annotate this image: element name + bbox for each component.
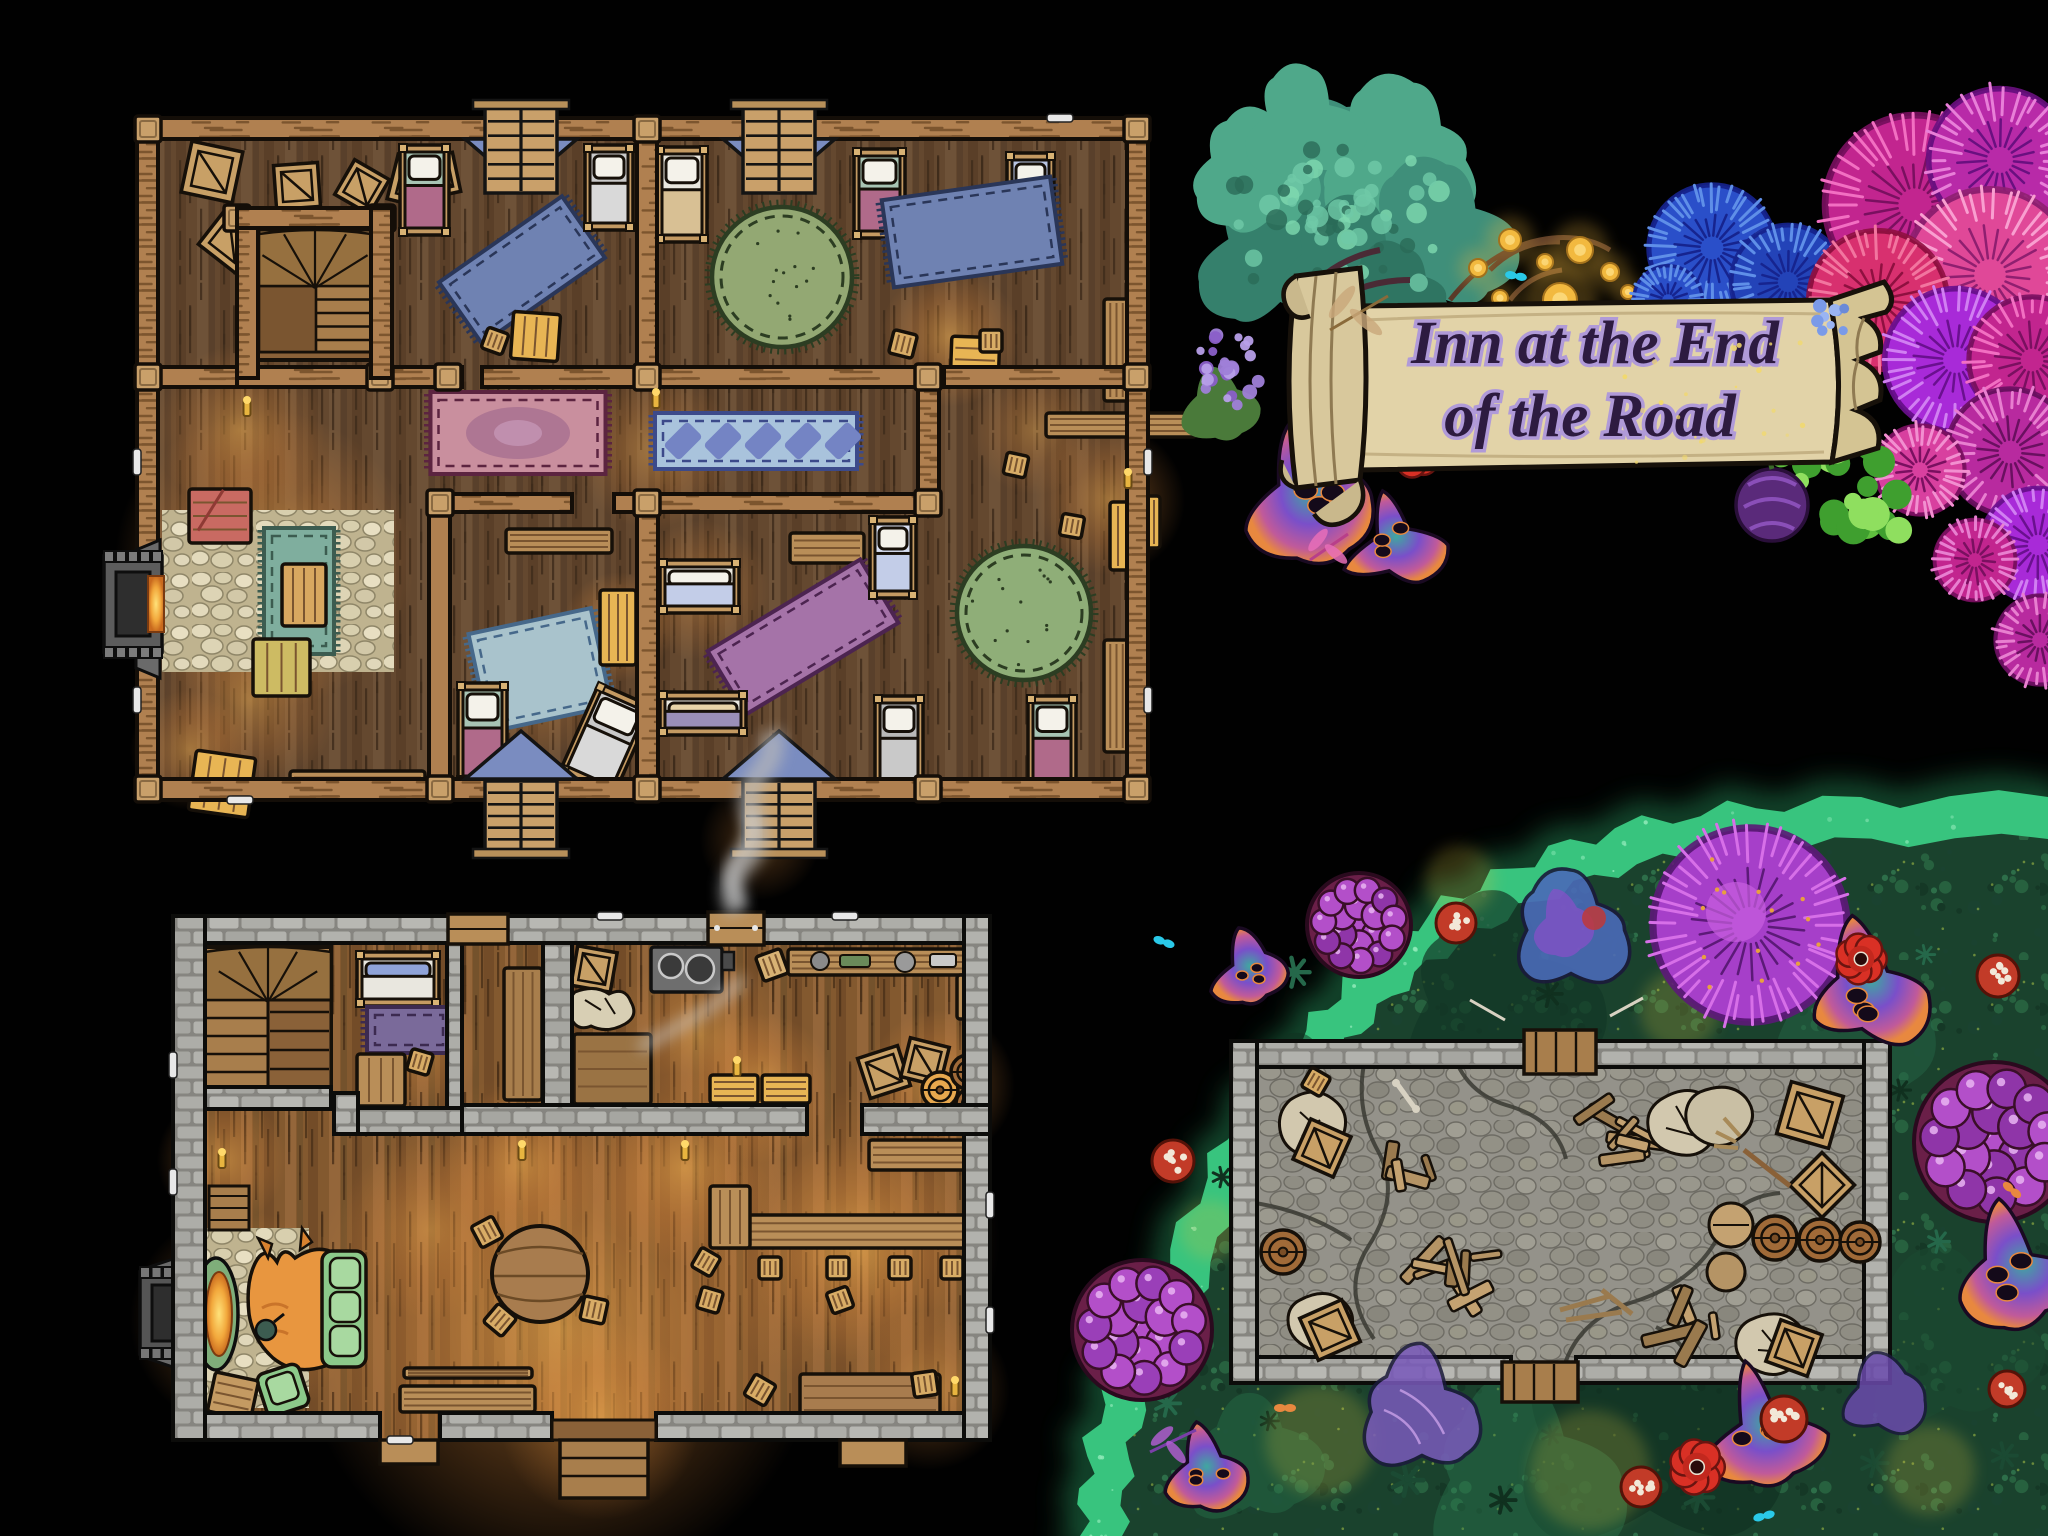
svg-text:Inn at the End: Inn at the End	[1410, 310, 1780, 377]
svg-text:of the Road: of the Road	[1444, 383, 1737, 450]
